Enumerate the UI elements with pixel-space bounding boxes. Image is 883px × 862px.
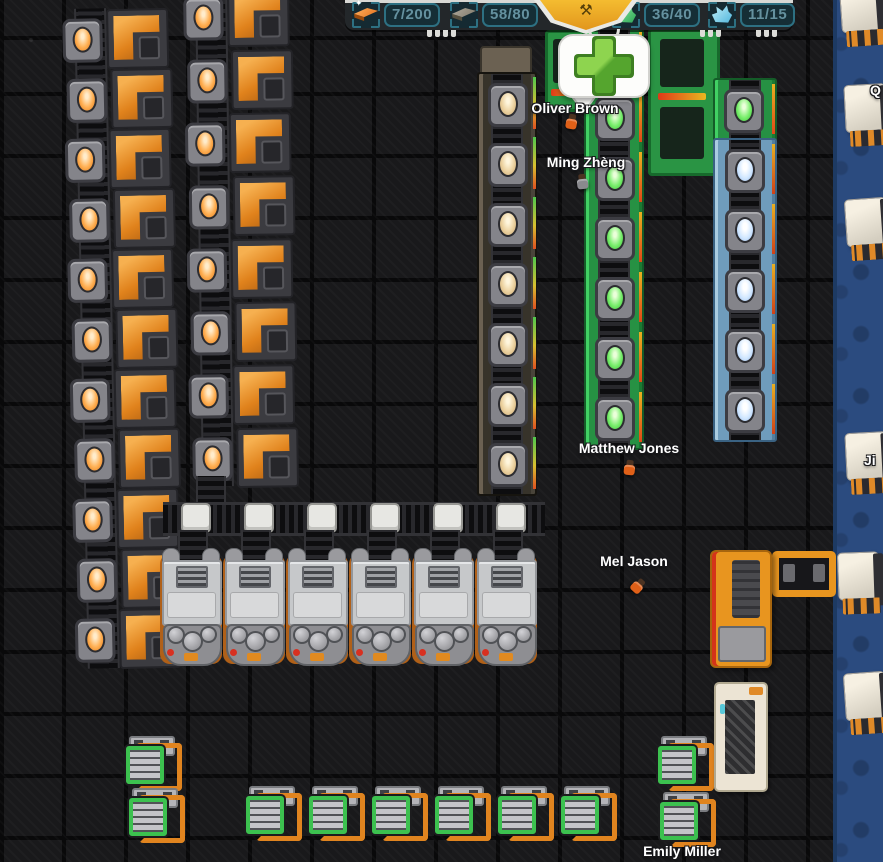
machine-unit-orange[interactable] [189,174,294,233]
machine-unit-blue[interactable] [715,320,775,378]
worker-sprite[interactable] [623,459,636,477]
machine-unit-orange[interactable] [183,0,288,45]
machine-unit-orange[interactable] [70,367,175,427]
hud-teeth-right [756,30,777,37]
machine-unit-orange[interactable] [62,7,167,67]
worker-name-label: Oliver Brown [531,100,618,116]
machine-unit-olive[interactable] [479,134,535,192]
machine-unit-orange[interactable] [66,67,171,127]
hud-teeth-left [427,30,456,37]
delivery-truck[interactable] [843,670,883,739]
belt-junction[interactable] [496,503,526,533]
supply-crate[interactable] [244,786,296,836]
belt-junction[interactable] [307,503,337,533]
iron-ingot-icon[interactable] [450,2,478,28]
delivery-truck[interactable] [839,0,883,52]
machine-unit-green[interactable] [715,80,775,138]
worker-name-label: Mel Jason [600,553,668,569]
supply-crate[interactable] [656,736,708,786]
belt-junction[interactable] [244,503,274,533]
furnace-row [160,530,544,666]
machine-unit-green[interactable] [586,388,642,446]
supply-crate[interactable] [370,786,422,836]
hud-teeth-mid [700,30,721,37]
machine-unit-olive[interactable] [479,74,535,132]
machine-unit-olive[interactable] [479,374,535,432]
worker-name-label: Emily Miller [643,843,721,859]
machine-unit-orange[interactable] [67,247,172,307]
supply-crate[interactable] [496,786,548,836]
machine-unit-orange[interactable] [69,187,174,247]
machine-line-blue[interactable] [713,138,777,442]
machine-unit-orange[interactable] [71,307,176,367]
delivery-truck[interactable] [844,196,883,265]
supply-crate[interactable] [658,792,710,842]
machine-unit-olive[interactable] [479,314,535,372]
machine-line-olive[interactable] [477,72,537,496]
belt-stub [196,476,226,504]
worker-name-label-partial: Ji [864,452,876,468]
forklift-truck[interactable] [710,550,772,668]
machine-unit-green[interactable] [586,328,642,386]
supply-crate[interactable] [127,788,179,838]
supply-crate[interactable] [307,786,359,836]
furnace-machine[interactable] [223,530,285,666]
blue-goods-icon[interactable] [708,2,736,28]
machine-unit-orange[interactable] [65,127,170,187]
furnace-machine[interactable] [412,530,474,666]
blue-goods-count[interactable]: 11/15 [740,3,795,27]
machine-unit-olive[interactable] [479,194,535,252]
machine-green-top[interactable] [713,78,777,142]
cargo-truck[interactable] [714,682,768,792]
worker-name-label: Ming Zhèng [547,154,626,170]
machine-unit-green[interactable] [586,268,642,326]
green-goods-count[interactable]: 36/40 [644,3,700,27]
iron-count[interactable]: 58/80 [482,3,538,27]
machine-line-orange-right[interactable] [183,0,294,487]
belt-junction[interactable] [433,503,463,533]
supply-crate[interactable] [124,736,176,786]
belt-junction[interactable] [181,503,211,533]
belt-junction[interactable] [370,503,400,533]
worker-sprite[interactable] [576,173,589,191]
worker-name-label-partial: Q [870,82,881,98]
machine-unit-orange[interactable] [187,237,292,296]
loading-dock[interactable] [772,551,836,597]
machine-unit-orange[interactable] [74,427,179,487]
furnace-machine[interactable] [475,530,537,666]
furnace-machine[interactable] [349,530,411,666]
machine-unit-green[interactable] [586,208,642,266]
machine-unit-orange[interactable] [190,300,295,359]
machine-unit-blue[interactable] [715,200,775,258]
machine-unit-olive[interactable] [479,254,535,312]
furnace-machine[interactable] [286,530,348,666]
worker-name-label: Matthew Jones [579,440,679,456]
add-notification-bubble[interactable] [558,34,650,98]
supply-crate[interactable] [559,786,611,836]
green-machine-large[interactable] [648,28,720,176]
copper-ingot-icon[interactable]: ✦ [352,2,380,28]
machine-unit-blue[interactable] [715,140,775,198]
machine-unit-blue[interactable] [715,380,775,438]
factory-scene: ✦ 7/200 58/80 36/40 11/15 ⚒ Oliver Brown… [0,0,883,862]
copper-count[interactable]: 7/200 [384,3,440,27]
machine-unit-orange[interactable] [185,111,290,170]
delivery-truck[interactable] [837,551,883,619]
furnace-machine[interactable] [160,530,222,666]
supply-crate[interactable] [433,786,485,836]
machine-unit-orange[interactable] [188,363,293,422]
machine-unit-orange[interactable] [187,48,292,107]
worker-sprite[interactable] [628,577,648,597]
machine-unit-olive[interactable] [479,434,535,492]
machine-unit-blue[interactable] [715,260,775,318]
